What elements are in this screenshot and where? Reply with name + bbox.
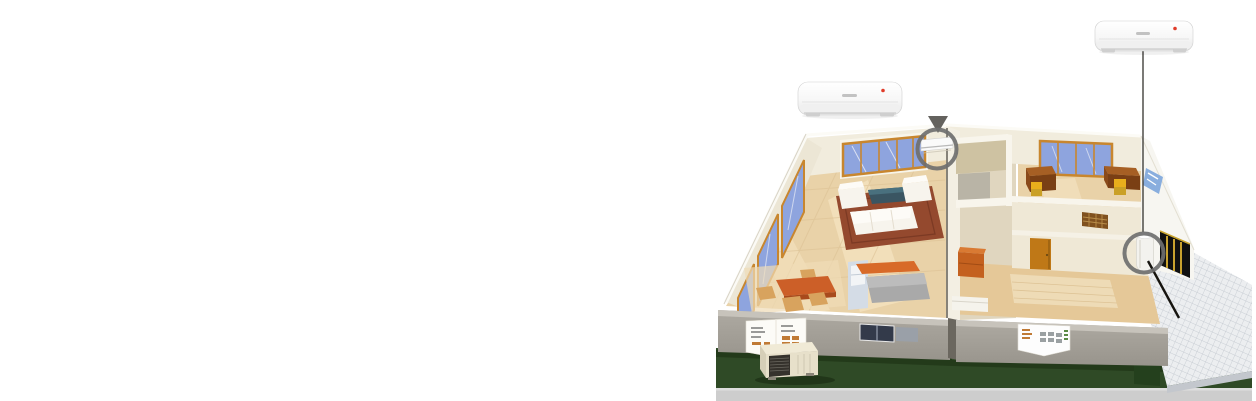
interior-door — [1030, 238, 1051, 270]
office-chair-right — [1114, 179, 1126, 195]
ac-unit-left[interactable] — [798, 82, 902, 119]
white-chest — [952, 296, 988, 312]
ac-left-foot-left — [806, 113, 820, 117]
power-indicator-dot — [1173, 27, 1177, 31]
house-cutaway-illustration — [0, 0, 1256, 401]
power-indicator-dot — [881, 89, 885, 93]
utility-wall-cap-right — [1006, 134, 1012, 206]
spec-leaflet-right-wall — [1018, 324, 1070, 356]
office-chair-left — [1031, 182, 1042, 196]
orange-dresser — [958, 247, 986, 278]
ac-right-foot-right — [1173, 49, 1186, 53]
door-handle — [1046, 254, 1048, 256]
dining-table — [776, 276, 836, 301]
ac-left-foot-right — [880, 113, 894, 117]
scene-canvas — [0, 0, 1256, 401]
outdoor-condenser-unit — [760, 342, 818, 380]
gree-logo — [842, 94, 857, 97]
coffee-table — [868, 187, 908, 204]
gree-logo — [1136, 32, 1150, 35]
dining-chair-back — [800, 269, 816, 278]
kitchen-island — [866, 273, 930, 303]
ac-right-foot-left — [1102, 49, 1115, 53]
wall-vent-grate — [1082, 212, 1108, 229]
right-exterior-wall — [1137, 136, 1195, 280]
ac-unit-right[interactable] — [1095, 21, 1193, 55]
